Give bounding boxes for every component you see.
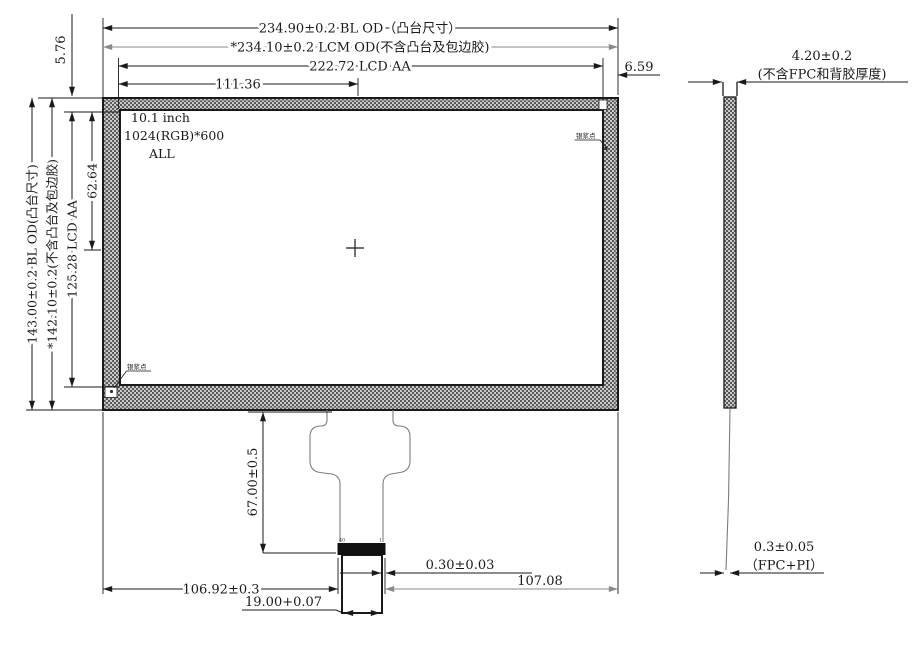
- panel-size-label: 10.1 inch: [131, 110, 190, 125]
- dim-height-half: 62.64: [85, 112, 100, 250]
- silver-paste-dot-bl: [110, 390, 113, 393]
- fpc-tail: [342, 555, 382, 613]
- dim-width-aa: 222.72 LCD AA: [119, 60, 604, 75]
- pin-number-right: 1: [379, 538, 382, 544]
- dim-edge-offset-top-left: 5.76: [54, 14, 72, 96]
- fpc-outline-right: [383, 410, 410, 542]
- dim-height-aa-label: 125.28 LCD AA: [65, 199, 80, 298]
- lcd-mechanical-drawing: 10.1 inch 1024(RGB)*600 ALL 银浆点 银浆点 40 1: [0, 0, 920, 649]
- dim-width-aa-label: 222.72 LCD AA: [309, 60, 411, 75]
- panel-resolution-label: 1024(RGB)*600: [124, 128, 224, 143]
- dim-fpc-drop-height-label: 67.00±0.5: [246, 448, 261, 517]
- dim-connector-offset-label: 0.30±0.03: [426, 558, 495, 573]
- dim-edge-offset-right-label: 6.59: [625, 60, 654, 75]
- dim-side-fpc-thickness-label: 0.3±0.05: [754, 540, 815, 555]
- dim-height-bl: 143.00±0.2 BL OD(凸台尺寸): [25, 98, 40, 410]
- dim-fpc-drop-height: 67.00±0.5: [246, 412, 336, 553]
- dim-side-thickness-note: (不含FPC和背胶厚度): [758, 67, 887, 83]
- dim-width-bl: 234.90±0.2 BL OD（凸台尺寸）: [103, 22, 618, 37]
- front-view: 10.1 inch 1024(RGB)*600 ALL 银浆点 银浆点: [103, 98, 618, 410]
- dim-height-lcm: *142.10±0.2(不含凸台及包边胶): [45, 98, 60, 410]
- side-bar-top-edges: [723, 82, 737, 96]
- panel-all-label: ALL: [148, 146, 175, 161]
- dim-side-fpc-note: （FPC+PI）: [745, 559, 824, 574]
- dim-width-half-label: 111.36: [215, 78, 261, 93]
- dim-fpc-offset-right-label: 107.08: [517, 574, 563, 589]
- dim-height-half-label: 62.64: [85, 163, 100, 199]
- dim-edge-offset-right: 6.59: [618, 60, 660, 75]
- dim-leader: [242, 610, 343, 613]
- dim-side-thickness: 4.20±0.2 (不含FPC和背胶厚度): [688, 49, 908, 83]
- dim-height-aa: 125.28 LCD AA: [65, 112, 80, 387]
- dim-width-bl-label: 234.90±0.2 BL OD（凸台尺寸）: [259, 22, 462, 37]
- fpc-assembly: 40 1: [310, 410, 410, 613]
- dim-side-fpc-thickness: 0.3±0.05 （FPC+PI）: [700, 540, 824, 574]
- dim-width-lcm-label: *234.10±0.2 LCM OD(不含凸台及包边胶): [231, 40, 490, 56]
- silver-paste-label-bl: 银浆点: [127, 362, 147, 371]
- dim-side-thickness-label: 4.20±0.2: [792, 49, 853, 64]
- fpc-connector: [338, 543, 386, 555]
- side-panel-bar: [724, 97, 736, 408]
- dim-tail-width-label: 19.00+0.07: [245, 595, 322, 610]
- side-fpc-line: [726, 409, 730, 570]
- dim-edge-offset-top-left-label: 5.76: [54, 36, 69, 65]
- dim-height-bl-label: 143.00±0.2 BL OD(凸台尺寸): [25, 164, 40, 344]
- dim-fpc-offset-right: 107.08: [385, 574, 618, 589]
- fpc-outline-left: [310, 410, 340, 542]
- pin-number-left: 40: [339, 538, 345, 544]
- notch-top-right: [599, 100, 607, 110]
- drawing-canvas: 10.1 inch 1024(RGB)*600 ALL 银浆点 银浆点 40 1: [0, 0, 920, 649]
- dim-width-lcm: *234.10±0.2 LCM OD(不含凸台及包边胶): [103, 40, 618, 56]
- dim-width-half: 111.36: [119, 78, 359, 93]
- dim-height-lcm-label: *142.10±0.2(不含凸台及包边胶): [45, 159, 60, 349]
- side-view: 4.20±0.2 (不含FPC和背胶厚度) 0.3±0.05 （FPC+PI）: [688, 49, 908, 574]
- silver-paste-label-tr: 银浆点: [576, 131, 596, 140]
